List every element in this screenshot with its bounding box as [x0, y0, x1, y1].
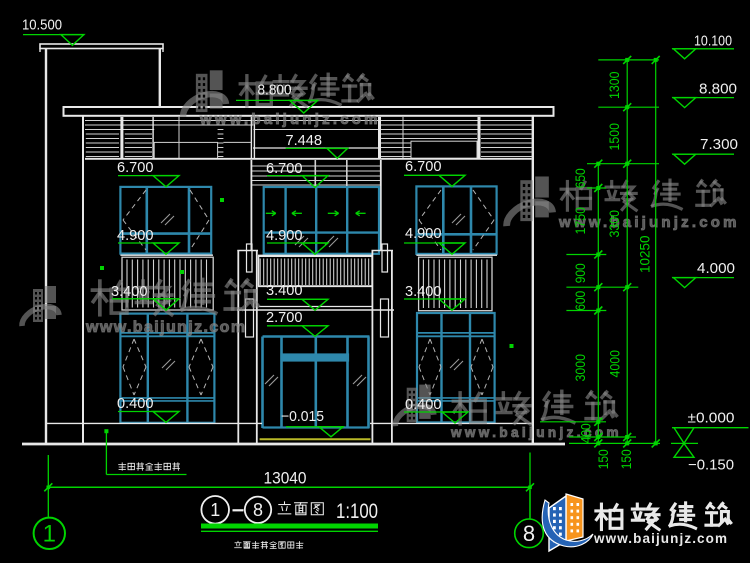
svg-text:6.700: 6.700: [117, 160, 154, 176]
svg-text:10.500: 10.500: [22, 18, 62, 34]
svg-text:4.000: 4.000: [697, 261, 735, 277]
svg-text:6.700: 6.700: [405, 159, 442, 175]
svg-text:6.700: 6.700: [266, 161, 303, 177]
svg-text:7.300: 7.300: [700, 137, 738, 153]
svg-text:3.400: 3.400: [111, 284, 148, 300]
svg-text:7.448: 7.448: [286, 133, 323, 149]
svg-text:3.400: 3.400: [405, 284, 442, 300]
svg-text:1: 1: [210, 500, 220, 520]
svg-text:13040: 13040: [264, 470, 307, 488]
svg-text:3300: 3300: [607, 210, 623, 238]
svg-text:2.700: 2.700: [266, 310, 303, 326]
svg-text:1750: 1750: [573, 207, 589, 235]
svg-text:4.900: 4.900: [266, 228, 303, 244]
svg-text:150: 150: [596, 449, 612, 469]
svg-text:0.400: 0.400: [405, 397, 442, 413]
svg-text:400: 400: [579, 423, 595, 443]
svg-text:1300: 1300: [607, 71, 623, 99]
svg-text:−0.015: −0.015: [281, 409, 324, 425]
svg-text:1:100: 1:100: [336, 499, 378, 523]
svg-text:10.100: 10.100: [694, 34, 732, 50]
svg-text:0.400: 0.400: [117, 396, 154, 412]
svg-text:3000: 3000: [573, 354, 589, 382]
svg-text:−0.150: −0.150: [688, 458, 734, 474]
svg-text:4.900: 4.900: [117, 228, 154, 244]
svg-text:8: 8: [523, 521, 535, 546]
svg-text:10250: 10250: [638, 235, 654, 273]
svg-text:4000: 4000: [608, 350, 624, 378]
svg-text:1: 1: [43, 521, 56, 548]
svg-text:600: 600: [573, 291, 589, 311]
svg-text:8.800: 8.800: [258, 83, 292, 99]
svg-text:www.baijunjz.com: www.baijunjz.com: [450, 425, 622, 440]
svg-text:www.baijunjz.com: www.baijunjz.com: [593, 531, 728, 546]
svg-text:650: 650: [573, 168, 589, 188]
svg-text:150: 150: [619, 449, 635, 469]
svg-text:www.baijunjz.com: www.baijunjz.com: [85, 319, 247, 336]
svg-text:1500: 1500: [607, 123, 623, 151]
svg-text:±0.000: ±0.000: [688, 411, 735, 427]
svg-text:4.900: 4.900: [405, 226, 442, 242]
svg-text:900: 900: [573, 263, 589, 283]
svg-text:3.400: 3.400: [266, 283, 303, 299]
svg-text:8.800: 8.800: [699, 82, 737, 98]
svg-text:www.baijunjz.com: www.baijunjz.com: [199, 111, 381, 128]
svg-text:8: 8: [253, 500, 263, 520]
